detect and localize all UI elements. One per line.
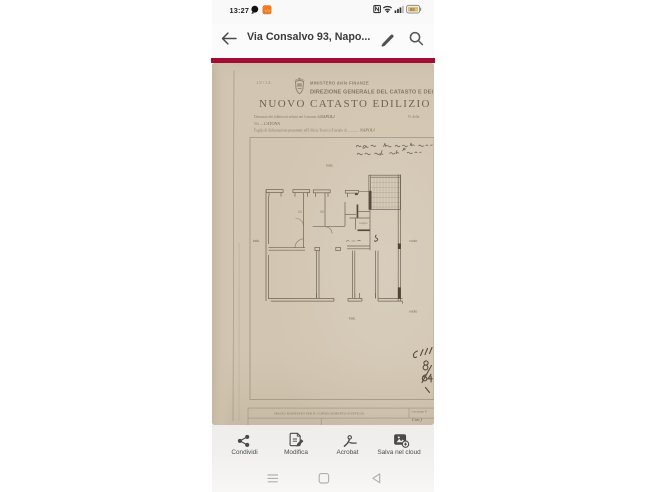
svg-text:balc.: balc. bbox=[253, 239, 260, 243]
svg-text:vuoto: vuoto bbox=[409, 309, 417, 313]
svg-text:NUOVO CATASTO EDILIZIO U: NUOVO CATASTO EDILIZIO U bbox=[259, 97, 434, 109]
svg-text:05: 05 bbox=[320, 210, 324, 214]
svg-text:Foglio di dichiarazione pre: Foglio di dichiarazione presentato all'U… bbox=[254, 128, 359, 132]
svg-text:vuoto: vuoto bbox=[409, 239, 417, 243]
svg-text:SPAZIO RISERVATO PER IL C: SPAZIO RISERVATO PER IL CONSEGUIMENTO D'… bbox=[274, 411, 365, 415]
svg-text:19714.: 19714. bbox=[256, 81, 273, 86]
svg-text:CATONA: CATONA bbox=[264, 121, 280, 126]
svg-text:N. della: N. della bbox=[408, 115, 420, 119]
svg-text:NAPOLI: NAPOLI bbox=[319, 114, 335, 119]
svg-text:balc.: balc. bbox=[326, 163, 333, 167]
svg-text:Con decreto N.: Con decreto N. bbox=[412, 410, 428, 413]
svg-text:Con f: Con f bbox=[412, 416, 423, 421]
svg-text:88: 88 bbox=[410, 7, 415, 12]
svg-text:MINISTERO delle FINANZE: MINISTERO delle FINANZE bbox=[310, 80, 369, 85]
svg-text:03: 03 bbox=[298, 210, 302, 214]
svg-text:bagno: bagno bbox=[360, 221, 368, 225]
svg-text:DIREZIONE GENERALE DEL CATASTO: DIREZIONE GENERALE DEL CATASTO E DEI SER… bbox=[310, 89, 434, 95]
svg-text:balc.: balc. bbox=[349, 316, 356, 320]
svg-text:NAPOLI: NAPOLI bbox=[359, 127, 375, 132]
